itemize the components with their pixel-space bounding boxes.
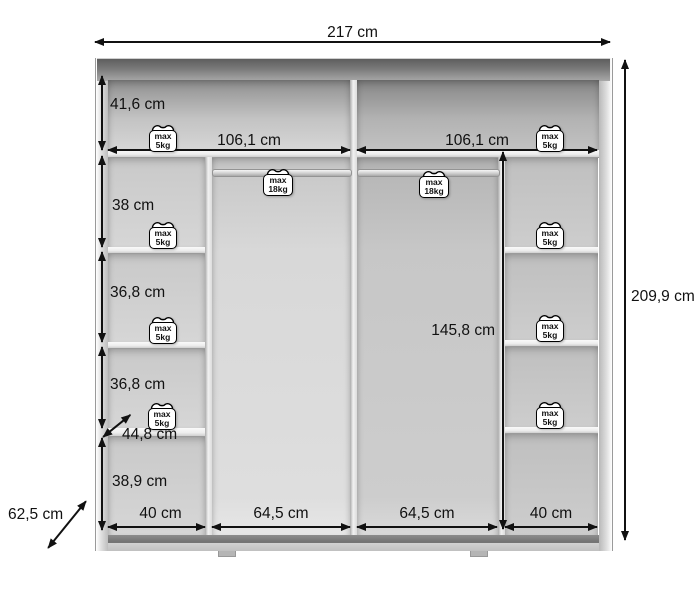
top-panel: [97, 58, 610, 81]
bottom-width-center-right-arrow: [357, 526, 497, 528]
max-load-line2: 18kg: [268, 185, 287, 194]
hanging-height-arrow: [502, 152, 504, 529]
max-load-line2: 5kg: [543, 418, 558, 427]
left-section-4-arrow: [101, 438, 103, 530]
left-section-2-arrow: [101, 252, 103, 342]
max-load-5kg-badge: max5kg: [144, 401, 180, 430]
center-left-hanging-compartment: [212, 157, 350, 535]
bottom-width-center-right-label: 64,5 cm: [357, 505, 497, 522]
max-load-5kg-badge: max5kg: [532, 123, 568, 152]
wardrobe-dimension-diagram: 217 cm 209,9 cm 62,5 cm 41,6 cm 38 cm 36…: [0, 0, 700, 596]
left-vertical-divider: [205, 157, 212, 535]
max-load-line2: 5kg: [543, 141, 558, 150]
total-width-label: 217 cm: [95, 24, 610, 41]
max-load-line2: 5kg: [543, 238, 558, 247]
center-right-hanging-compartment: [357, 157, 498, 535]
max-load-5kg-badge: max5kg: [532, 220, 568, 249]
total-width-arrow: [95, 41, 610, 43]
bottom-width-center-left-label: 64,5 cm: [212, 505, 350, 522]
max-load-line2: 18kg: [424, 187, 443, 196]
total-height-label: 209,9 cm: [631, 288, 695, 305]
max-load-line2: 5kg: [156, 238, 171, 247]
max-load-18kg-badge: max18kg: [260, 167, 296, 196]
max-load-line2: 5kg: [156, 333, 171, 342]
max-load-line2: 5kg: [155, 419, 170, 428]
left-section-1-arrow: [101, 156, 103, 247]
max-load-line2: 5kg: [156, 141, 171, 150]
foot-left: [218, 551, 236, 557]
total-depth-label: 62,5 cm: [8, 506, 63, 523]
bottom-width-left-col-arrow: [108, 526, 205, 528]
max-load-line2: 5kg: [543, 331, 558, 340]
left-section-3-arrow: [101, 347, 103, 428]
foot-right: [470, 551, 488, 557]
max-load-18kg-badge: max18kg: [416, 169, 452, 198]
max-load-5kg-badge: max5kg: [145, 220, 181, 249]
bottom-width-left-col-label: 40 cm: [112, 505, 209, 522]
max-load-5kg-badge: max5kg: [145, 315, 181, 344]
max-load-5kg-badge: max5kg: [532, 313, 568, 342]
bottom-width-right-col-arrow: [505, 526, 597, 528]
max-load-5kg-badge: max5kg: [145, 123, 181, 152]
left-section-1-label: 38 cm: [112, 197, 154, 214]
top-section-height-label: 41,6 cm: [110, 96, 165, 113]
right-side-panel: [599, 58, 613, 551]
max-load-5kg-badge: max5kg: [532, 400, 568, 429]
left-section-3-label: 36,8 cm: [110, 376, 165, 393]
top-section-height-arrow: [101, 76, 103, 150]
plinth: [108, 543, 599, 551]
bottom-width-right-col-label: 40 cm: [505, 505, 597, 522]
hanging-height-label: 145,8 cm: [395, 322, 495, 339]
total-height-arrow: [624, 60, 626, 540]
left-section-2-label: 36,8 cm: [110, 284, 165, 301]
bottom-width-center-left-arrow: [212, 526, 350, 528]
left-section-4-label: 38,9 cm: [112, 473, 167, 490]
